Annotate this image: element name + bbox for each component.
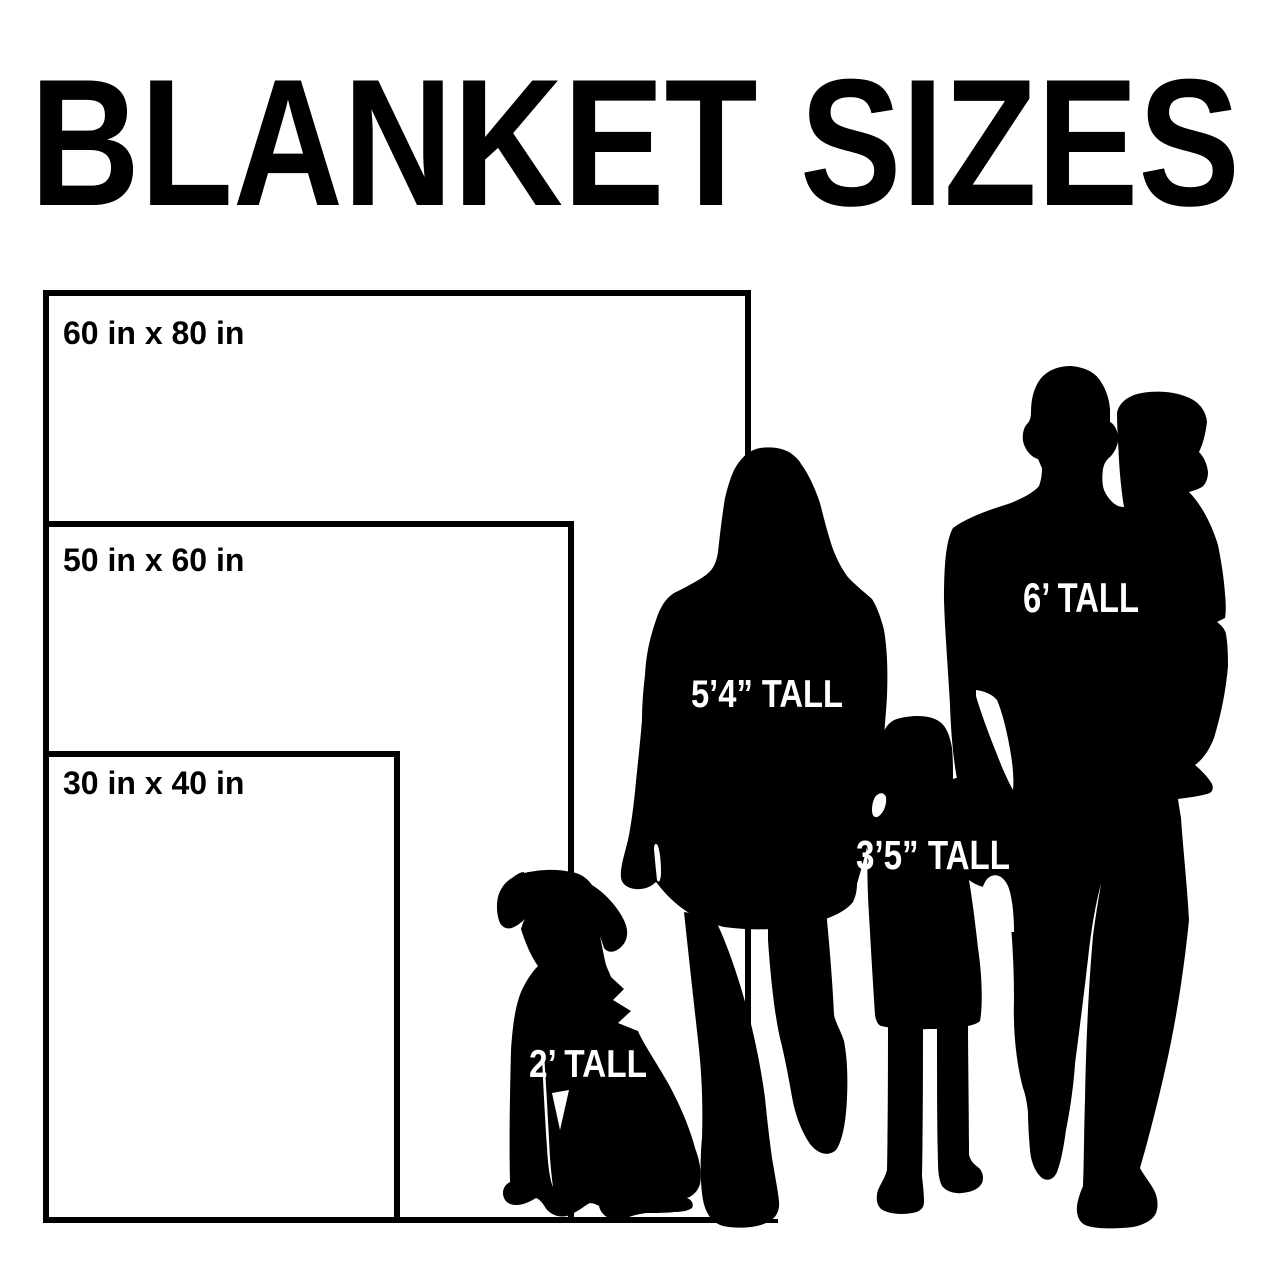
svg-text:3’5” TALL: 3’5” TALL [856, 832, 1010, 878]
svg-text:6’ TALL: 6’ TALL [1023, 574, 1139, 621]
svg-text:60 in x 80 in: 60 in x 80 in [63, 315, 244, 351]
svg-text:BLANKET SIZES: BLANKET SIZES [30, 42, 1240, 244]
svg-text:50 in x 60 in: 50 in x 60 in [63, 542, 244, 578]
svg-text:2’ TALL: 2’ TALL [529, 1043, 647, 1086]
svg-text:5’4” TALL: 5’4” TALL [691, 673, 843, 716]
svg-text:30 in x 40 in: 30 in x 40 in [63, 765, 244, 801]
